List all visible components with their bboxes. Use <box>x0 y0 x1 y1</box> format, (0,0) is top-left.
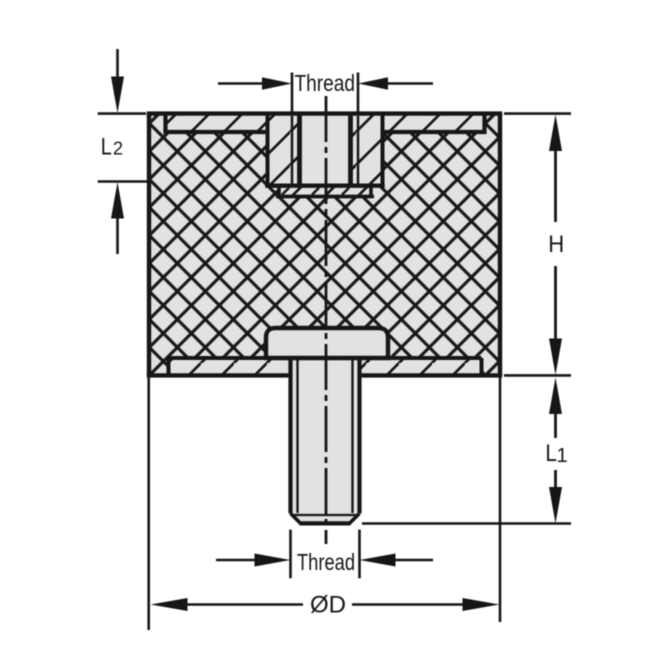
svg-text:ØD: ØD <box>310 591 346 618</box>
svg-text:Thread: Thread <box>295 70 356 96</box>
svg-text:2: 2 <box>113 138 123 158</box>
svg-text:L: L <box>545 440 557 467</box>
svg-text:H: H <box>548 231 564 258</box>
svg-text:Thread: Thread <box>297 549 355 575</box>
svg-text:L: L <box>101 134 112 161</box>
svg-text:1: 1 <box>557 445 568 467</box>
